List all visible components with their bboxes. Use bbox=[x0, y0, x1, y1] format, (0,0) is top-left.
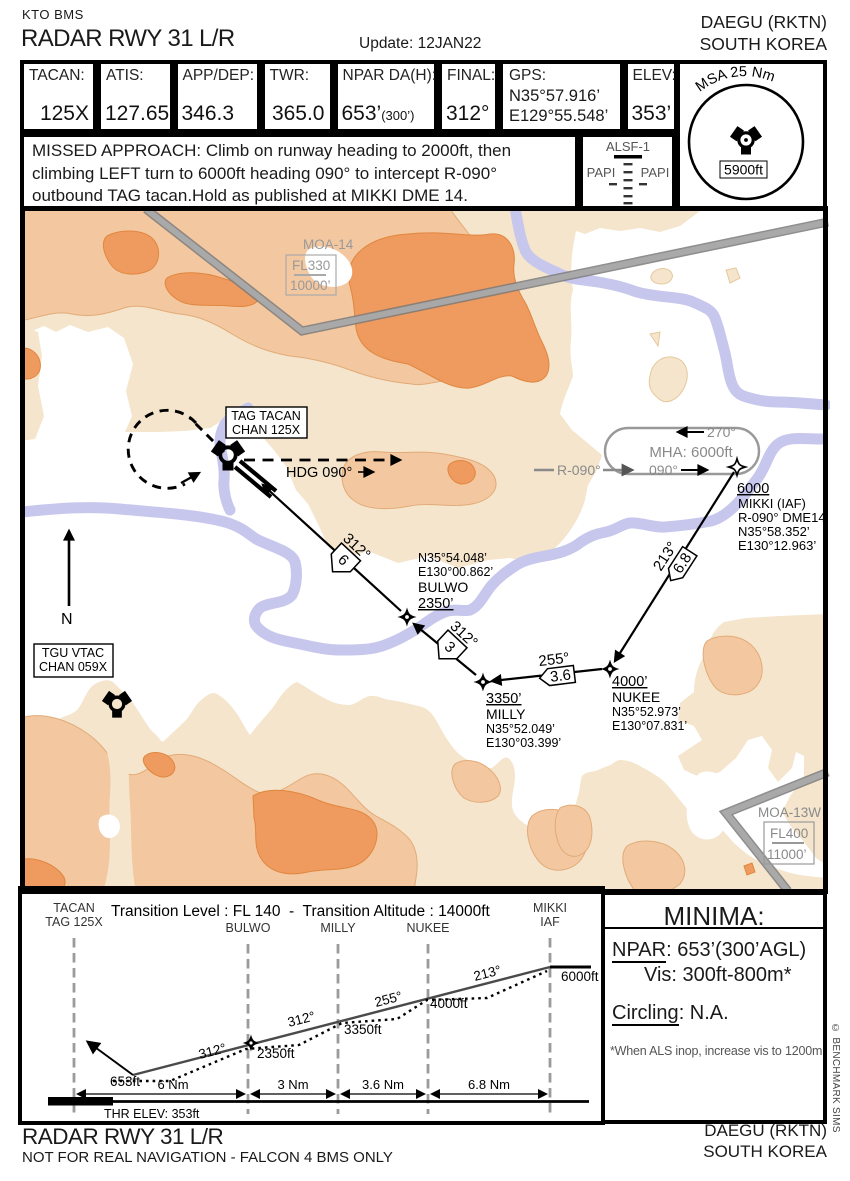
svg-text:6.8 Nm: 6.8 Nm bbox=[468, 1077, 510, 1092]
svg-text:ALSF-1: ALSF-1 bbox=[605, 139, 649, 154]
svg-text:TAG 125X: TAG 125X bbox=[45, 915, 103, 929]
svg-text:N: N bbox=[61, 611, 73, 628]
svg-text:653ft: 653ft bbox=[110, 1074, 140, 1089]
svg-text:N35°52.973’: N35°52.973’ bbox=[612, 705, 681, 719]
svg-text:BULWO: BULWO bbox=[226, 921, 271, 935]
svg-text:MOA-14: MOA-14 bbox=[303, 237, 354, 252]
svg-text:11000’: 11000’ bbox=[767, 847, 807, 862]
svg-text:E130°03.399’: E130°03.399’ bbox=[486, 736, 561, 750]
svg-text:5900ft: 5900ft bbox=[724, 162, 763, 178]
svg-text:4000’: 4000’ bbox=[612, 674, 647, 690]
svg-text:TACAN: TACAN bbox=[53, 901, 94, 915]
svg-text:312°: 312° bbox=[286, 1008, 317, 1030]
svg-text:MILLY: MILLY bbox=[320, 921, 356, 935]
svg-text:E130°07.831’: E130°07.831’ bbox=[612, 719, 687, 733]
svg-text:PAPI: PAPI bbox=[640, 165, 669, 180]
svg-text:6000ft: 6000ft bbox=[561, 969, 599, 984]
svg-text:6000: 6000 bbox=[737, 481, 769, 497]
svg-text:IAF: IAF bbox=[540, 915, 560, 929]
svg-text:MSA 25 Nm: MSA 25 Nm bbox=[693, 64, 777, 95]
svg-text:MOA-13W: MOA-13W bbox=[758, 805, 821, 820]
svg-text:HDG 090°: HDG 090° bbox=[286, 465, 352, 481]
svg-text:TAG TACAN: TAG TACAN bbox=[231, 409, 300, 423]
svg-text:E130°12.963’: E130°12.963’ bbox=[738, 538, 816, 553]
svg-text:3.6: 3.6 bbox=[549, 666, 572, 685]
svg-text:3 Nm: 3 Nm bbox=[277, 1077, 308, 1092]
svg-text:MIKKI: MIKKI bbox=[533, 901, 567, 915]
svg-text:THR ELEV: 353ft: THR ELEV: 353ft bbox=[104, 1107, 200, 1121]
svg-text:MHA: 6000ft: MHA: 6000ft bbox=[649, 444, 733, 461]
svg-text:4000ft: 4000ft bbox=[430, 996, 468, 1011]
svg-text:N35°58.352’: N35°58.352’ bbox=[738, 524, 810, 539]
svg-text:090°: 090° bbox=[649, 462, 678, 478]
svg-text:FL330: FL330 bbox=[292, 258, 330, 273]
svg-text:N35°52.049’: N35°52.049’ bbox=[486, 722, 555, 736]
svg-text:R-090°: R-090° bbox=[557, 462, 601, 478]
svg-text:BULWO: BULWO bbox=[418, 579, 468, 595]
svg-text:NUKEE: NUKEE bbox=[612, 689, 660, 705]
svg-text:270°: 270° bbox=[707, 424, 736, 440]
svg-text:3350’: 3350’ bbox=[486, 691, 521, 707]
svg-text:NUKEE: NUKEE bbox=[406, 921, 449, 935]
svg-text:2350’: 2350’ bbox=[418, 596, 453, 612]
svg-text:3.6 Nm: 3.6 Nm bbox=[362, 1077, 404, 1092]
svg-text:PAPI: PAPI bbox=[586, 165, 615, 180]
svg-text:CHAN 125X: CHAN 125X bbox=[232, 423, 301, 437]
svg-text:3350ft: 3350ft bbox=[344, 1022, 382, 1037]
svg-text:TGU VTAC: TGU VTAC bbox=[42, 646, 104, 660]
svg-text:R-090° DME14: R-090° DME14 bbox=[738, 510, 826, 525]
svg-text:CHAN 059X: CHAN 059X bbox=[39, 660, 108, 674]
svg-text:N35°54.048’: N35°54.048’ bbox=[418, 551, 487, 565]
svg-text:6 Nm: 6 Nm bbox=[157, 1077, 188, 1092]
svg-text:10000’: 10000’ bbox=[290, 278, 331, 293]
svg-text:MILLY: MILLY bbox=[486, 706, 526, 722]
svg-text:Transition Level : FL 140 -: Transition Level : FL 140 - Transition A… bbox=[111, 903, 491, 920]
svg-text:E130°00.862’: E130°00.862’ bbox=[418, 565, 493, 579]
svg-text:FL400: FL400 bbox=[770, 826, 808, 841]
svg-text:2350ft: 2350ft bbox=[257, 1046, 295, 1061]
svg-text:MIKKI (IAF): MIKKI (IAF) bbox=[738, 496, 806, 511]
